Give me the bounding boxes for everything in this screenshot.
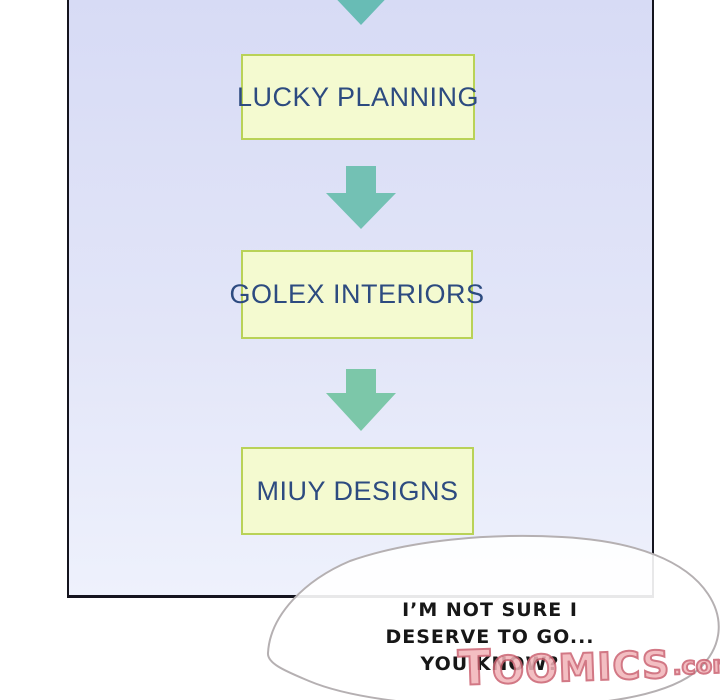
flowchart-node-lucky-planning: LUCKY PLANNING xyxy=(241,54,475,140)
speech-line: I’M NOT SURE I xyxy=(352,597,628,624)
flowchart-node-miuy-designs: MIUY DESIGNS xyxy=(241,447,474,535)
flowchart-node-label: MIUY DESIGNS xyxy=(256,476,458,507)
flowchart-node-label: GOLEX INTERIORS xyxy=(229,279,484,310)
flowchart-node-golex-interiors: GOLEX INTERIORS xyxy=(241,250,473,339)
toomics-watermark-logo: TOOMICS.com xyxy=(457,631,720,697)
flowchart-node-label: LUCKY PLANNING xyxy=(237,82,479,113)
watermark-brand: TOOMICS xyxy=(457,633,671,696)
watermark-suffix: .com xyxy=(672,650,720,680)
